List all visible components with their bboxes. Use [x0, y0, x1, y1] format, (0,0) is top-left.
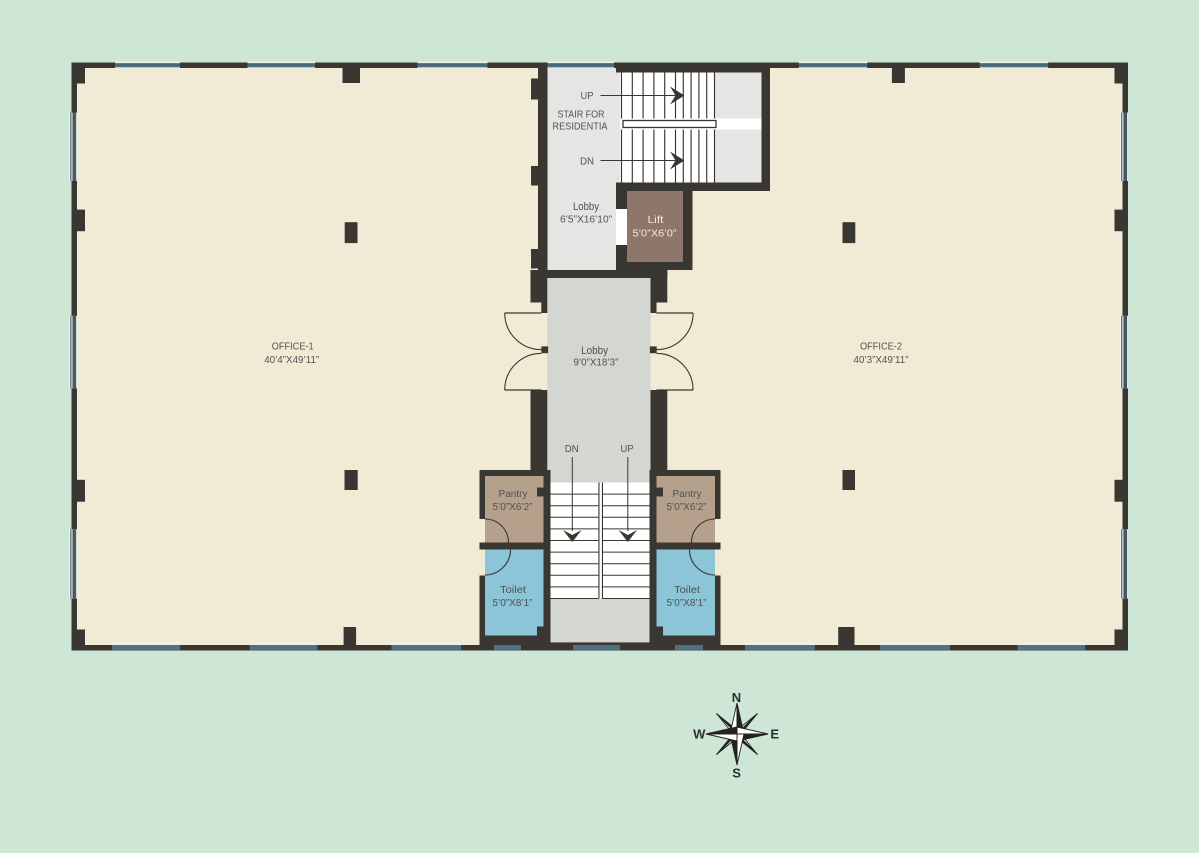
svg-text:5’0”X8’1”: 5’0”X8’1” — [667, 598, 707, 609]
svg-text:Lobby: Lobby — [581, 345, 608, 357]
svg-text:5’0”X6’2”: 5’0”X6’2” — [667, 502, 707, 513]
svg-text:Toilet: Toilet — [500, 584, 526, 596]
svg-text:S: S — [732, 766, 741, 781]
svg-text:DN: DN — [580, 156, 594, 168]
svg-text:Toilet: Toilet — [674, 584, 700, 596]
svg-text:OFFICE-2: OFFICE-2 — [860, 340, 902, 352]
svg-text:9’0”X18’3”: 9’0”X18’3” — [573, 358, 618, 369]
svg-text:Lift: Lift — [648, 215, 664, 226]
svg-text:RESIDENTIA: RESIDENTIA — [553, 122, 608, 133]
svg-text:W: W — [693, 727, 706, 742]
svg-text:OFFICE-1: OFFICE-1 — [272, 340, 314, 352]
svg-text:DN: DN — [565, 443, 579, 455]
svg-text:N: N — [732, 690, 741, 705]
svg-text:UP: UP — [581, 90, 594, 102]
svg-text:5’0”X6’0”: 5’0”X6’0” — [633, 228, 677, 239]
svg-text:Lobby: Lobby — [573, 201, 599, 213]
svg-text:5’0”X8’1”: 5’0”X8’1” — [493, 598, 533, 609]
svg-text:E: E — [770, 727, 779, 742]
svg-text:6’5”X16’10”: 6’5”X16’10” — [560, 215, 612, 226]
svg-text:UP: UP — [621, 443, 634, 455]
svg-text:40’3”X49’11”: 40’3”X49’11” — [854, 355, 909, 366]
svg-text:40’4”X49’11”: 40’4”X49’11” — [264, 355, 319, 366]
svg-text:Pantry: Pantry — [499, 488, 529, 500]
svg-text:Pantry: Pantry — [673, 488, 703, 500]
svg-text:STAIR FOR: STAIR FOR — [558, 110, 605, 121]
svg-text:5’0”X6’2”: 5’0”X6’2” — [493, 502, 533, 513]
